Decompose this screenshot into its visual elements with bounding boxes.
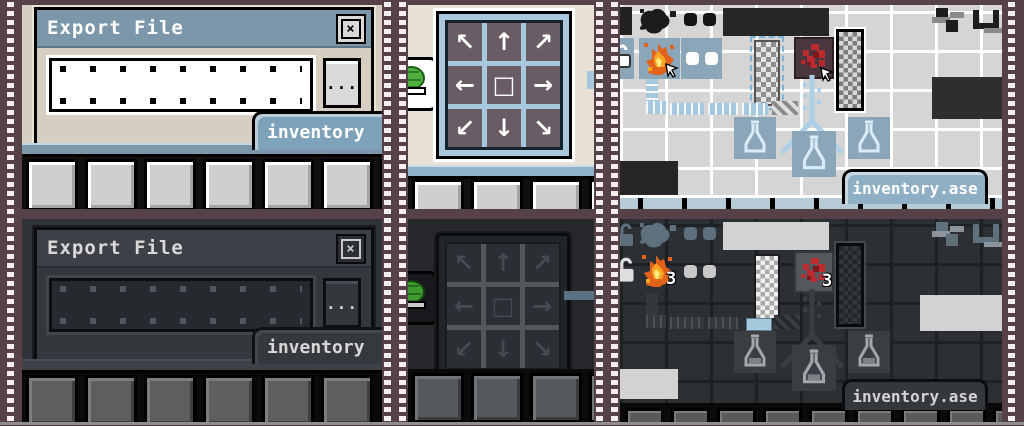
potion-slot	[792, 345, 836, 391]
arrow-down-left-icon: ↙	[448, 109, 482, 147]
browse-button[interactable]: ...	[323, 58, 361, 108]
panel-spritesheet-light[interactable]: inventory.ase	[620, 5, 1002, 209]
inventory-slot-dots	[681, 38, 722, 79]
ink-blob-icon	[636, 5, 680, 37]
pipe-elbow	[646, 315, 666, 328]
theme-comparison-screenshot: Export File × ... inventory	[0, 0, 1024, 426]
timeline-frame[interactable]	[26, 159, 78, 209]
filename-input[interactable]	[49, 278, 313, 332]
light-bar-sprite	[920, 295, 1002, 331]
arrow-up-right-icon: ↗	[525, 244, 559, 282]
timeline-frame[interactable]	[993, 408, 1002, 422]
double-dots-icon	[684, 13, 716, 26]
tab-strip	[408, 165, 594, 179]
arrow-right-icon: →	[526, 66, 560, 104]
arrow-down-icon: ↓	[487, 109, 521, 147]
film-strip	[594, 0, 620, 426]
arrow-down-left-icon: ↙	[447, 330, 481, 368]
turtle-shell-icon	[408, 271, 438, 325]
stack-count-badge: 3	[822, 271, 832, 291]
input-tick-marks	[60, 66, 302, 72]
pipe-wavy-segment	[742, 103, 768, 115]
cursor-pointer-icon	[820, 67, 835, 83]
black-bar-sprite	[723, 8, 829, 36]
timeline-frame[interactable]	[203, 375, 255, 422]
input-tick-marks	[60, 286, 302, 292]
pipe-u-icon	[972, 8, 1002, 36]
dialog-title: Export File	[47, 17, 184, 39]
pipe-s-icon	[932, 222, 966, 250]
panel-export-dialog-light: Export File × ... inventory	[22, 5, 382, 209]
timeline	[22, 371, 382, 422]
browse-button[interactable]: ...	[323, 278, 361, 328]
arrow-down-icon: ↓	[486, 330, 520, 368]
timeline-frame[interactable]	[321, 159, 373, 209]
arrow-up-icon: ↑	[486, 244, 520, 282]
timeline-frame[interactable]	[262, 375, 314, 422]
pipe-wavy-segment	[670, 103, 704, 115]
panel-arrowpad-dark[interactable]: ↖ ↑ ↗ ← □ → ↙ ↓ ↘	[408, 219, 594, 422]
stack-count-badge: 3	[666, 269, 676, 289]
timeline-frame[interactable]	[85, 159, 137, 209]
black-bar-sprite	[932, 77, 1002, 119]
panel-spritesheet-dark[interactable]: 3 3	[620, 219, 1002, 422]
arrow-down-right-icon: ↘	[525, 330, 559, 368]
close-button[interactable]: ×	[336, 234, 366, 264]
tab-label: inventory.ase	[852, 387, 977, 406]
arrow-left-icon: ←	[447, 287, 481, 325]
timeline-frame[interactable]	[471, 179, 523, 209]
timeline	[408, 175, 594, 209]
close-button[interactable]: ×	[336, 14, 366, 44]
inventory-slot	[620, 38, 634, 79]
ellipsis-icon: ...	[326, 74, 358, 93]
tab-inventory-ase[interactable]: inventory.ase	[842, 169, 988, 204]
scrollbar-handle[interactable]	[587, 71, 594, 89]
pipe-wavy-segment	[708, 317, 738, 329]
panel-arrowpad-light[interactable]: ↖ ↑ ↗ ← □ → ↙ ↓ ↘	[408, 5, 594, 209]
pipe-wavy-segment	[708, 103, 738, 115]
potion-flask-icon	[853, 120, 885, 156]
close-icon: ×	[341, 19, 361, 39]
dialog-titlebar[interactable]: Export File ×	[37, 10, 371, 48]
arrow-left-icon: ←	[448, 66, 482, 104]
double-dots-icon	[684, 265, 716, 278]
padlock-icon	[620, 7, 632, 35]
potion-slot	[792, 131, 836, 177]
bottom-rail	[0, 422, 1024, 426]
center-square-icon: □	[486, 287, 520, 325]
pipe-wavy-segment	[670, 317, 704, 329]
potion-flask-icon	[797, 349, 831, 387]
cursor-pointer-icon	[665, 63, 680, 79]
timeline-frame[interactable]	[717, 408, 756, 422]
timeline-frame[interactable]	[671, 408, 710, 422]
arrow-up-right-icon: ↗	[526, 23, 560, 61]
potion-flask-icon	[853, 334, 885, 370]
timeline-frame[interactable]	[144, 375, 196, 422]
tab-inventory[interactable]: inventory	[252, 111, 382, 150]
tab-inventory[interactable]: inventory	[252, 327, 382, 364]
timeline-frame[interactable]	[412, 179, 464, 209]
timeline-frame[interactable]	[947, 408, 986, 422]
dialog-titlebar[interactable]: Export File ×	[37, 230, 371, 268]
timeline-frame[interactable]	[412, 373, 464, 422]
pipe-elbow	[646, 101, 666, 114]
potion-slot	[734, 331, 776, 373]
film-strip	[0, 0, 22, 426]
tab-label: inventory.ase	[852, 179, 977, 198]
scrollbar-handle[interactable]	[564, 291, 594, 300]
arrow-up-icon: ↑	[487, 23, 521, 61]
tab-inventory-ase[interactable]: inventory.ase	[842, 379, 988, 410]
timeline	[22, 155, 382, 209]
tab-label: inventory	[267, 122, 365, 143]
timeline	[408, 369, 594, 422]
timeline-frame[interactable]	[530, 373, 582, 422]
arrow-pad-sprite: ↖ ↑ ↗ ← □ → ↙ ↓ ↘	[436, 233, 570, 379]
pipe-s-icon	[932, 8, 966, 36]
ellipsis-icon: ...	[326, 294, 358, 313]
timeline-frame[interactable]	[471, 373, 523, 422]
timeline-frame[interactable]	[85, 375, 137, 422]
padlock-icon	[620, 255, 636, 287]
potion-slot	[848, 117, 890, 159]
timeline-frame[interactable]	[321, 375, 373, 422]
black-bar-sprite	[620, 161, 678, 199]
timeline-frame[interactable]	[530, 179, 582, 209]
arrow-up-left-icon: ↖	[447, 244, 481, 282]
potion-flask-icon	[739, 120, 771, 156]
timeline-frame[interactable]	[901, 408, 940, 422]
padlock-icon	[620, 221, 636, 251]
timeline-frame[interactable]	[26, 375, 78, 422]
tab-label: inventory	[267, 337, 365, 358]
arrow-pad-sprite: ↖ ↑ ↗ ← □ → ↙ ↓ ↘	[436, 11, 572, 159]
filename-input[interactable]	[49, 58, 313, 112]
arrow-up-left-icon: ↖	[448, 23, 482, 61]
close-icon: ×	[341, 239, 361, 259]
timeline-frame[interactable]	[203, 159, 255, 209]
arrow-right-icon: →	[525, 287, 559, 325]
panel-export-dialog-dark: Export File × ... inventory	[22, 219, 382, 422]
potion-slot	[848, 331, 890, 373]
potion-slot	[734, 117, 776, 159]
timeline-frame[interactable]	[625, 408, 664, 422]
arrow-down-right-icon: ↘	[526, 109, 560, 147]
pipe-wavy-segment-highlighted	[746, 318, 772, 331]
light-bar-sprite	[620, 369, 678, 399]
pipe-u-icon	[972, 222, 1002, 250]
light-bar-sprite	[723, 222, 829, 250]
timeline-frame[interactable]	[855, 408, 894, 422]
potion-flask-icon	[739, 334, 771, 370]
dialog-title: Export File	[47, 237, 184, 259]
ink-blob-icon	[636, 219, 680, 251]
timeline-frame[interactable]	[144, 159, 196, 209]
potion-flask-icon	[797, 135, 831, 173]
timeline-frame[interactable]	[262, 159, 314, 209]
timeline-frame[interactable]	[809, 408, 848, 422]
input-tick-marks	[60, 98, 302, 104]
timeline-frame[interactable]	[763, 408, 802, 422]
double-dots-icon	[684, 227, 716, 240]
turtle-shell-icon	[408, 57, 438, 111]
film-strip	[1002, 0, 1024, 426]
input-tick-marks	[60, 318, 302, 324]
film-strip	[382, 0, 408, 426]
center-square-icon: □	[487, 66, 521, 104]
